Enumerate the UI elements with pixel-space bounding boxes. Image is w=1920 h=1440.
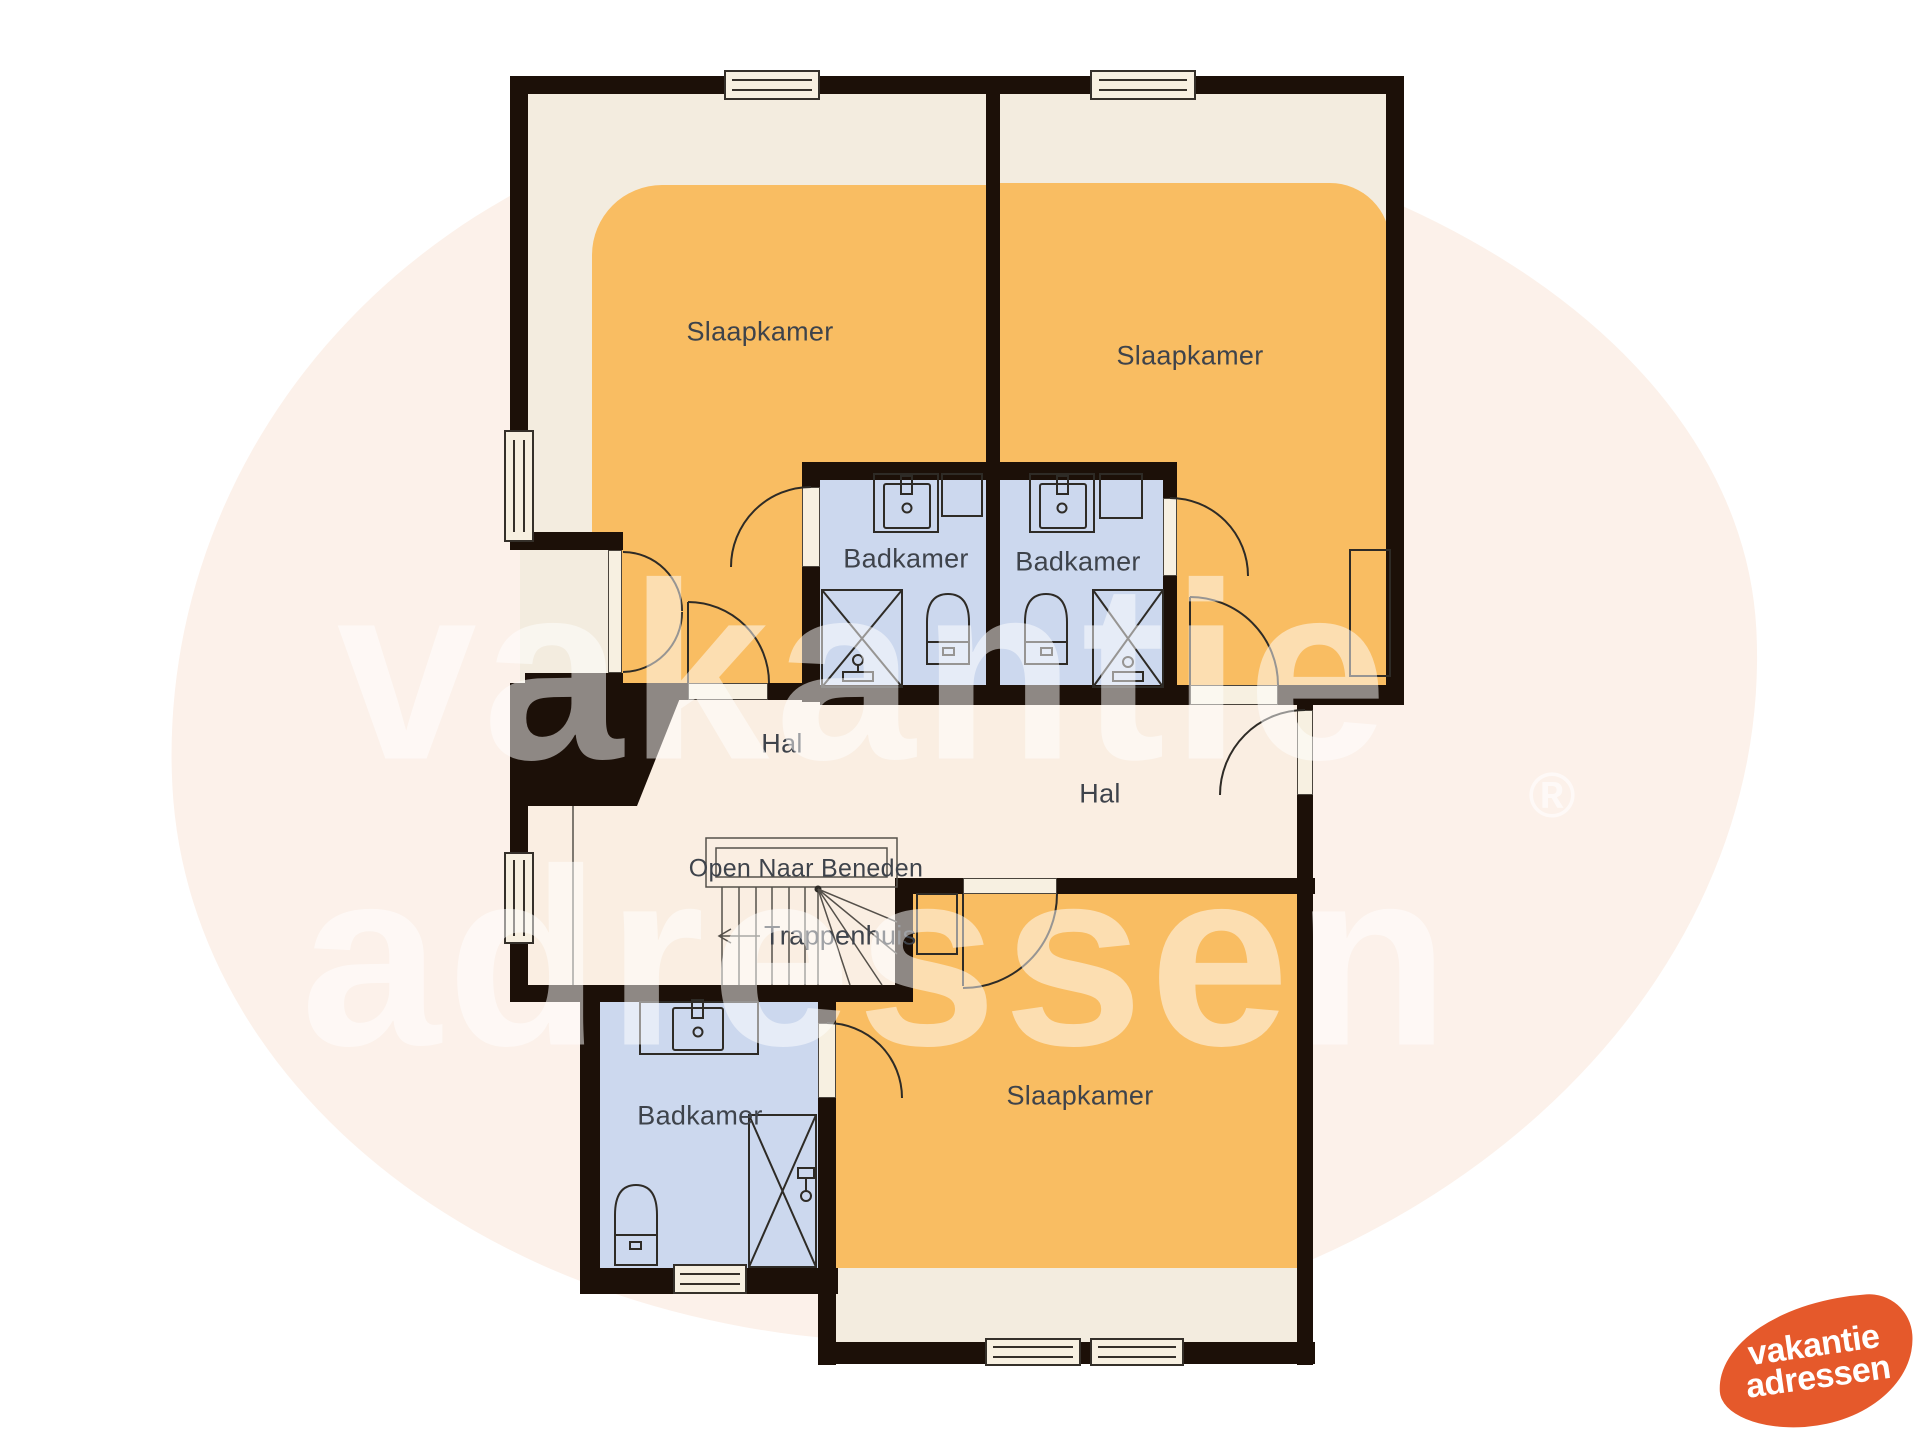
watermark-line2: adressen <box>301 814 1456 1103</box>
window <box>1090 1338 1184 1366</box>
watermark-line1: vakantie <box>337 528 1394 817</box>
wall-segment <box>510 76 1404 94</box>
room-label-bedroom-top-right: Slaapkamer <box>1116 341 1263 372</box>
room-label-bathroom-bottom: Badkamer <box>637 1101 762 1132</box>
window <box>985 1338 1081 1366</box>
watermark-registered-icon: ® <box>1528 758 1575 832</box>
wall-segment <box>802 462 1177 480</box>
room-label-bedroom-top-left: Slaapkamer <box>686 317 833 348</box>
floorplan-canvas: Slaapkamer Slaapkamer Slaapkamer Badkame… <box>0 0 1920 1440</box>
window <box>724 70 820 100</box>
brand-logo: vakantie adressen <box>1718 1298 1914 1426</box>
window <box>673 1264 747 1294</box>
window <box>1090 70 1196 100</box>
window <box>504 430 534 542</box>
